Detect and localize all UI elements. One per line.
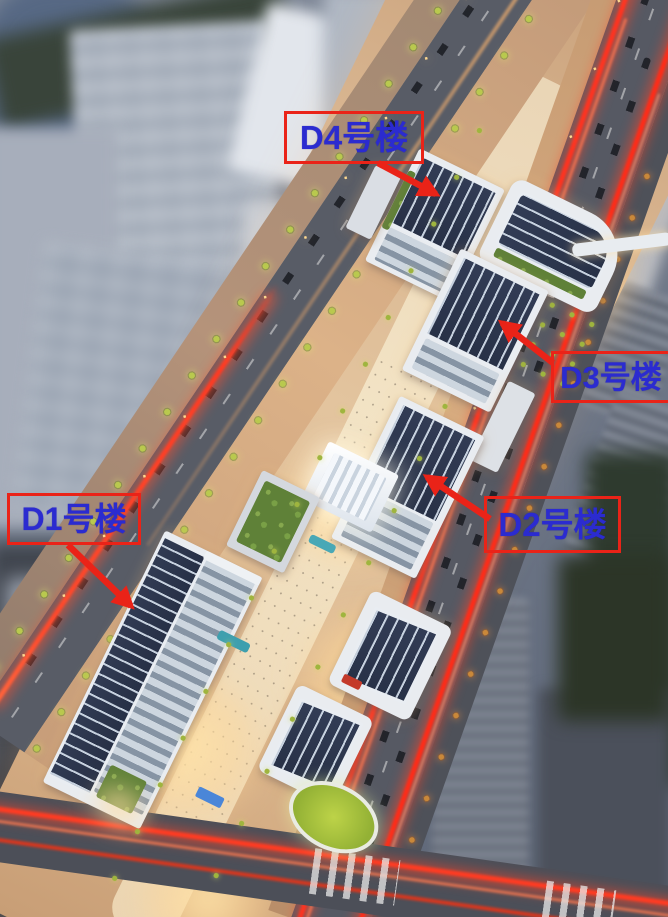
label-d3-text: D3号楼	[560, 362, 662, 393]
pavilion-north-solar-roof	[340, 607, 440, 705]
aerial-rendering-canvas: D4号楼 D3号楼 D2号楼 D1号楼	[0, 0, 668, 917]
label-d3: D3号楼	[551, 351, 668, 403]
label-d2-text: D2号楼	[498, 508, 606, 541]
green-space-bottom-right	[558, 556, 668, 721]
label-d4: D4号楼	[284, 111, 424, 164]
label-d2: D2号楼	[484, 496, 621, 553]
label-d1: D1号楼	[7, 493, 141, 545]
label-d4-text: D4号楼	[300, 121, 408, 154]
label-d1-text: D1号楼	[22, 503, 127, 535]
led-screen-blue	[195, 786, 225, 808]
